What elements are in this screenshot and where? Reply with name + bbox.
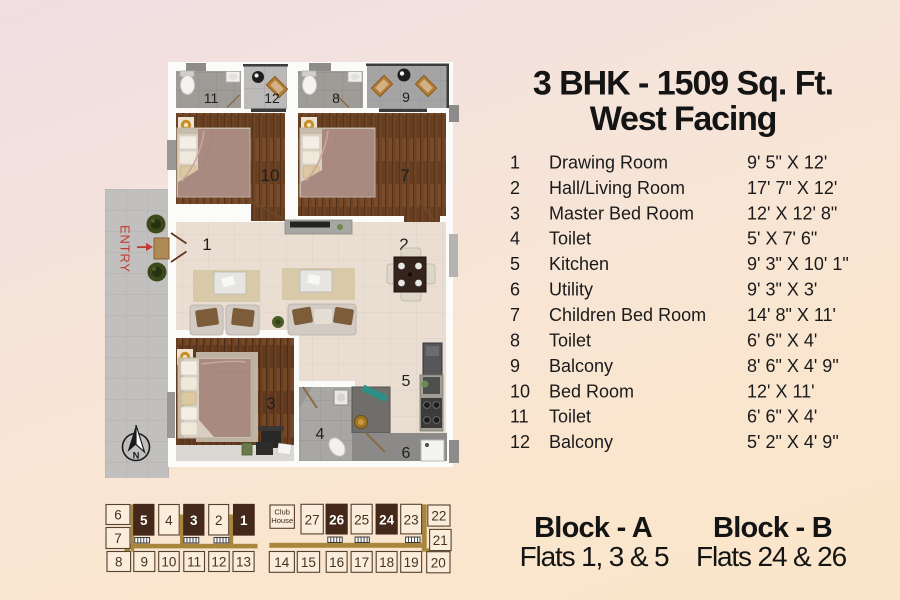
svg-text:8: 8 — [115, 555, 123, 570]
svg-text:Balcony: Balcony — [549, 356, 613, 376]
svg-text:3: 3 — [266, 394, 275, 413]
svg-text:1: 1 — [510, 152, 520, 172]
svg-text:24: 24 — [379, 513, 395, 528]
svg-text:5' 2" X 4' 9": 5' 2" X 4' 9" — [747, 432, 839, 452]
svg-text:9' 3" X 10' 1": 9' 3" X 10' 1" — [747, 254, 849, 274]
svg-text:Drawing Room: Drawing Room — [549, 152, 668, 172]
svg-text:2: 2 — [215, 513, 223, 528]
svg-text:Flats 1, 3 & 5: Flats 1, 3 & 5 — [520, 541, 669, 572]
svg-text:11: 11 — [187, 555, 201, 570]
svg-text:Utility: Utility — [549, 280, 593, 300]
svg-text:8' 6" X 4' 9": 8' 6" X 4' 9" — [747, 356, 839, 376]
svg-text:Kitchen: Kitchen — [549, 254, 609, 274]
svg-text:23: 23 — [404, 513, 419, 528]
svg-text:4: 4 — [316, 426, 325, 443]
svg-text:7: 7 — [510, 305, 520, 325]
svg-text:5: 5 — [140, 513, 148, 528]
svg-text:8: 8 — [510, 330, 520, 350]
svg-text:9: 9 — [141, 555, 149, 570]
svg-text:9' 5" X 12': 9' 5" X 12' — [747, 152, 827, 172]
svg-text:10: 10 — [161, 555, 176, 570]
svg-text:Flats 24 & 26: Flats 24 & 26 — [696, 541, 847, 572]
svg-text:12: 12 — [211, 555, 226, 570]
svg-text:4: 4 — [165, 513, 173, 528]
svg-text:10: 10 — [510, 381, 530, 401]
svg-text:11: 11 — [204, 90, 219, 106]
svg-text:14: 14 — [274, 555, 290, 570]
svg-text:20: 20 — [431, 555, 446, 570]
svg-text:9: 9 — [402, 89, 410, 105]
svg-text:26: 26 — [329, 513, 345, 528]
svg-text:6' 6" X 4': 6' 6" X 4' — [747, 407, 817, 427]
svg-text:3: 3 — [190, 513, 198, 528]
svg-text:6: 6 — [510, 280, 520, 300]
svg-text:17: 17 — [354, 555, 369, 570]
svg-text:5: 5 — [510, 254, 520, 274]
svg-text:17' 7" X 12': 17' 7" X 12' — [747, 178, 837, 198]
svg-text:12' X 12' 8": 12' X 12' 8" — [747, 203, 837, 223]
svg-text:15: 15 — [301, 555, 316, 570]
svg-text:Toilet: Toilet — [549, 330, 591, 350]
svg-text:12: 12 — [510, 432, 530, 452]
svg-text:Hall/Living Room: Hall/Living Room — [549, 178, 685, 198]
svg-text:Block - A: Block - A — [534, 512, 653, 544]
svg-text:19: 19 — [404, 555, 419, 570]
svg-text:6: 6 — [114, 508, 122, 523]
svg-text:Block - B: Block - B — [713, 512, 832, 544]
svg-text:1: 1 — [240, 513, 248, 528]
svg-text:ENTRY: ENTRY — [118, 225, 133, 273]
svg-text:9: 9 — [510, 356, 520, 376]
svg-text:Children Bed Room: Children Bed Room — [549, 305, 706, 325]
svg-text:N: N — [133, 451, 140, 462]
svg-text:6' 6" X 4': 6' 6" X 4' — [747, 330, 817, 350]
svg-text:Toilet: Toilet — [549, 229, 591, 249]
svg-text:14' 8" X 11': 14' 8" X 11' — [747, 305, 836, 325]
svg-text:9' 3" X 3': 9' 3" X 3' — [747, 280, 817, 300]
svg-text:12: 12 — [264, 90, 280, 106]
svg-text:13: 13 — [236, 555, 251, 570]
svg-text:8: 8 — [332, 90, 340, 106]
svg-text:West Facing: West Facing — [590, 100, 776, 138]
svg-text:3: 3 — [510, 203, 520, 223]
svg-text:10: 10 — [261, 166, 280, 185]
svg-text:21: 21 — [433, 533, 448, 548]
svg-text:House: House — [271, 516, 293, 525]
svg-text:Toilet: Toilet — [549, 407, 591, 427]
svg-text:27: 27 — [305, 513, 320, 528]
svg-text:5' X 7' 6": 5' X 7' 6" — [747, 229, 817, 249]
svg-text:18: 18 — [379, 555, 394, 570]
svg-text:22: 22 — [431, 509, 446, 524]
svg-text:3 BHK - 1509 Sq. Ft.: 3 BHK - 1509 Sq. Ft. — [533, 65, 833, 103]
svg-text:7: 7 — [400, 166, 409, 185]
svg-text:7: 7 — [114, 531, 122, 546]
svg-text:Balcony: Balcony — [549, 432, 613, 452]
svg-text:25: 25 — [354, 513, 369, 528]
svg-text:4: 4 — [510, 229, 520, 249]
svg-text:Bed Room: Bed Room — [549, 381, 634, 401]
svg-text:Master Bed Room: Master Bed Room — [549, 203, 694, 223]
svg-text:11: 11 — [510, 407, 529, 427]
svg-text:1: 1 — [202, 235, 211, 254]
svg-text:2: 2 — [510, 178, 520, 198]
svg-text:12' X 11': 12' X 11' — [747, 381, 815, 401]
svg-text:6: 6 — [402, 445, 411, 462]
svg-text:5: 5 — [402, 373, 411, 390]
svg-text:16: 16 — [329, 555, 344, 570]
